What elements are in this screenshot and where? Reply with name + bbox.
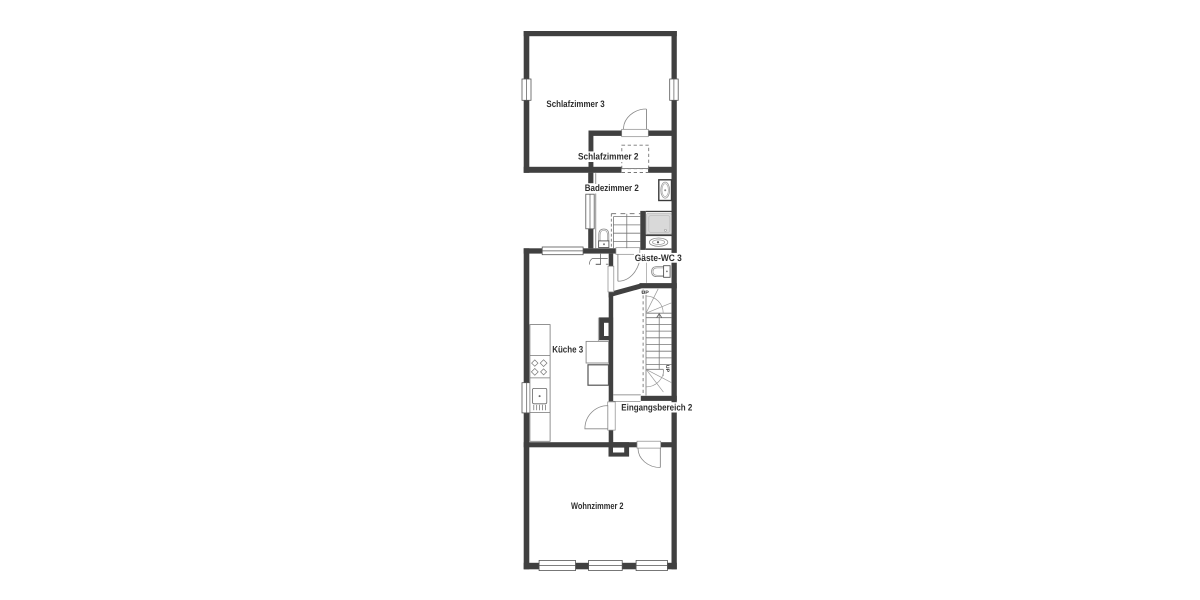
svg-text:UP: UP [664, 365, 670, 373]
svg-text:Eingangsbereich 2: Eingangsbereich 2 [621, 401, 692, 412]
svg-text:Wohnzimmer 2: Wohnzimmer 2 [571, 500, 624, 511]
svg-text:Badezimmer 2: Badezimmer 2 [585, 182, 639, 193]
svg-text:UP: UP [641, 290, 649, 296]
svg-text:Küche 3: Küche 3 [552, 344, 583, 355]
svg-text:Schlafzimmer 3: Schlafzimmer 3 [546, 98, 604, 109]
svg-text:Gäste-WC 3: Gäste-WC 3 [635, 252, 682, 263]
svg-text:Schlafzimmer 2: Schlafzimmer 2 [578, 151, 639, 162]
